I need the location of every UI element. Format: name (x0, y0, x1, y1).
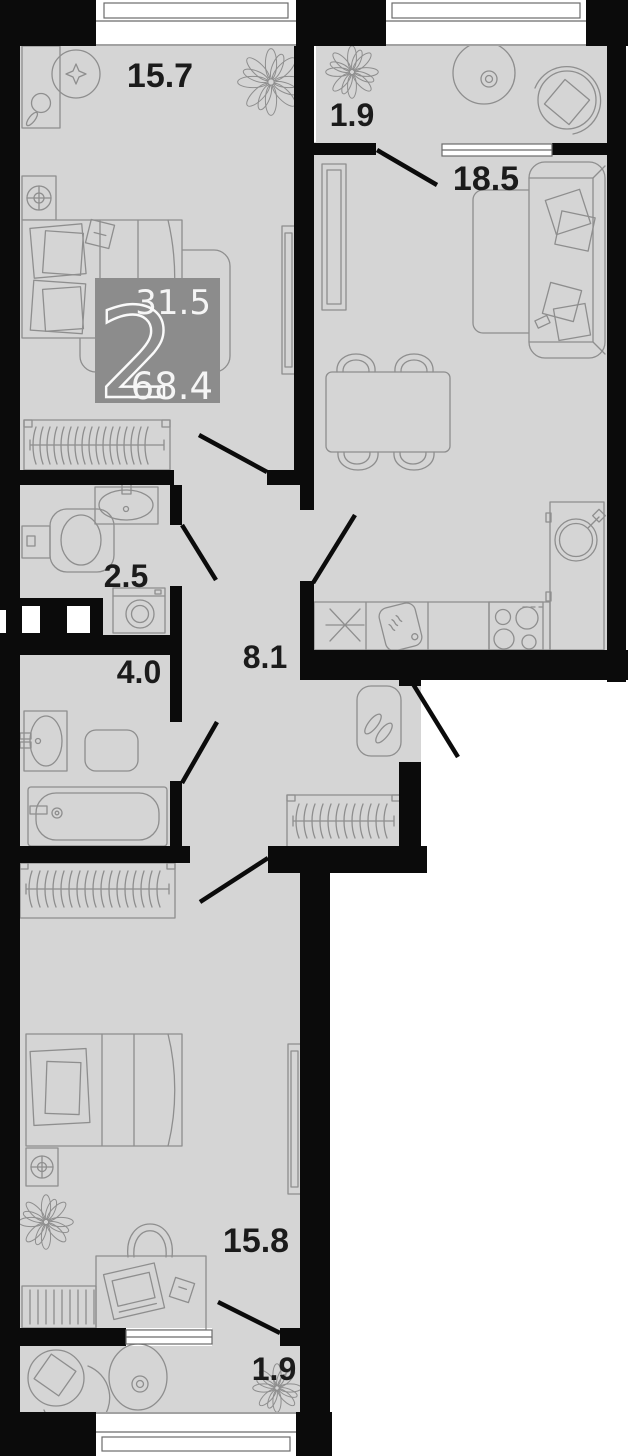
single-bed-icon (26, 1034, 182, 1146)
total-area-value: 68.4 (131, 365, 213, 408)
balcony-window-icon (126, 1330, 212, 1344)
window-icon (386, 0, 586, 46)
room-area-label-bathroom-large: 4.0 (117, 654, 161, 690)
room-area-label-hallway: 8.1 (243, 639, 287, 675)
floor-plan-page: 31.5 2 68.4 15.7 1.9 18.5 2.5 4.0 8.1 15… (0, 0, 628, 1456)
sofa-icon (529, 162, 605, 358)
window-icon (96, 1412, 296, 1456)
room-area-label-balcony-top: 1.9 (330, 97, 374, 133)
apartment-summary-badge: 31.5 2 68.4 (95, 278, 220, 427)
room-area-label-kitchen-living: 18.5 (453, 160, 519, 198)
window-icon (96, 0, 296, 46)
balcony-window-icon (442, 144, 552, 156)
room-area-label-bathroom-small: 2.5 (104, 558, 148, 594)
floor-plan-canvas: 31.5 2 68.4 15.7 1.9 18.5 2.5 4.0 8.1 15… (0, 0, 628, 1456)
room-area-label-bedroom-top: 15.7 (127, 57, 193, 95)
vent-shaft (67, 606, 90, 633)
vent-shaft (0, 610, 6, 633)
kitchen-doorway-floor (302, 510, 315, 581)
room-area-label-bedroom-bottom: 15.8 (223, 1222, 289, 1260)
balcony-doorway-floor (212, 1328, 280, 1346)
vent-shaft (22, 606, 40, 633)
room-area-label-balcony-bottom: 1.9 (252, 1351, 296, 1387)
